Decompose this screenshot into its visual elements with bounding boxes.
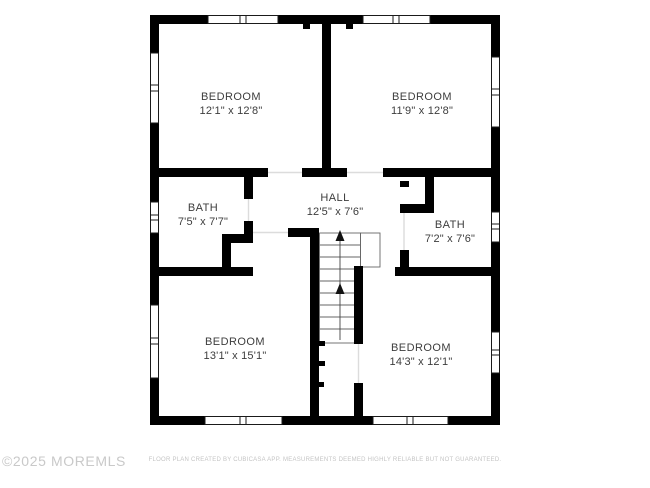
window <box>492 212 500 242</box>
room-bedroom-bottom-left: BEDROOM 13'1" x 15'1" <box>204 335 267 363</box>
window <box>208 16 278 24</box>
jamb-nub <box>400 181 409 187</box>
stair-upper-outline <box>361 233 381 267</box>
room-dimensions: 12'5" x 7'6" <box>307 205 364 219</box>
window <box>151 202 159 233</box>
staircase <box>320 230 381 343</box>
jamb-nub <box>318 382 324 387</box>
wall-bath-right-jog <box>400 204 434 213</box>
room-dimensions: 7'5" x 7'7" <box>178 215 228 229</box>
room-bath-left: BATH 7'5" x 7'7" <box>178 201 228 229</box>
jamb-nub <box>319 341 325 346</box>
window <box>363 16 430 24</box>
wall-bath-left-south <box>159 267 253 276</box>
jamb-nub <box>303 24 310 29</box>
stair-up-arrow-icon <box>336 283 345 294</box>
wall-stair-east-lower <box>354 383 363 416</box>
room-name: BATH <box>178 201 228 215</box>
room-dimensions: 14'3" x 12'1" <box>390 355 453 369</box>
room-name: BEDROOM <box>390 341 453 355</box>
room-bath-right: BATH 7'2" x 7'6" <box>425 218 475 246</box>
window <box>151 53 159 123</box>
room-hall: HALL 12'5" x 7'6" <box>307 191 364 219</box>
wall-divider-foot <box>302 168 347 177</box>
wall-bedroom-divider <box>322 24 331 168</box>
room-dimensions: 12'1" x 12'8" <box>200 104 263 118</box>
stair-up-arrow-icon <box>336 230 345 241</box>
window <box>492 57 500 127</box>
floorplan-canvas: BEDROOM 12'1" x 12'8" BEDROOM 11'9" x 12… <box>0 0 650 488</box>
wall-bath-left-east-upper <box>244 177 253 199</box>
room-bedroom-top-left: BEDROOM 12'1" x 12'8" <box>200 90 263 118</box>
room-bedroom-top-right: BEDROOM 11'9" x 12'8" <box>391 90 453 118</box>
room-name: BEDROOM <box>204 335 267 349</box>
watermark: ©2025 MOREMLS <box>2 453 126 469</box>
wall-hall-north-right <box>383 168 491 177</box>
window <box>205 417 282 425</box>
wall-bath-right-south <box>395 267 491 276</box>
room-dimensions: 11'9" x 12'8" <box>391 104 453 118</box>
room-name: HALL <box>307 191 364 205</box>
footer-disclaimer: FLOOR PLAN CREATED BY CUBICASA APP. MEAS… <box>140 457 510 463</box>
wall-stair-east-upper <box>354 266 363 344</box>
wall-exterior-top <box>150 15 500 24</box>
wall-hall-north-left <box>159 168 268 177</box>
window <box>492 332 500 373</box>
room-name: BEDROOM <box>391 90 453 104</box>
jamb-nub <box>319 361 325 366</box>
window <box>151 305 159 378</box>
wall-stair-west <box>310 228 319 416</box>
room-name: BEDROOM <box>200 90 263 104</box>
jamb-nub <box>346 24 353 29</box>
room-dimensions: 7'2" x 7'6" <box>425 232 475 246</box>
room-bedroom-bottom-right: BEDROOM 14'3" x 12'1" <box>390 341 453 369</box>
floorplan-drawing <box>0 0 650 488</box>
window <box>373 417 448 425</box>
room-name: BATH <box>425 218 475 232</box>
room-dimensions: 13'1" x 15'1" <box>204 349 267 363</box>
